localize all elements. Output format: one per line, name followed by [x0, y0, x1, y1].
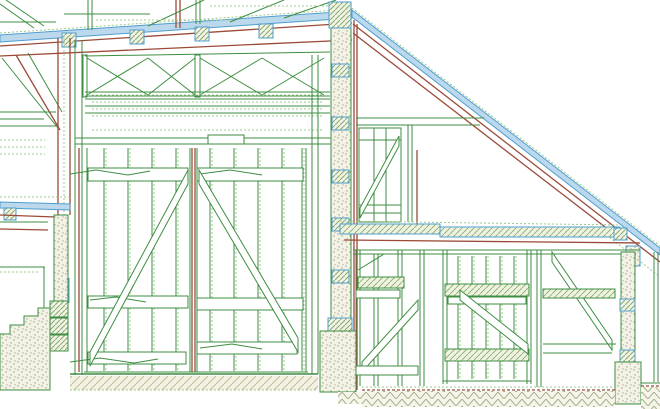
center-post	[320, 2, 364, 404]
left-top-rail	[88, 168, 188, 181]
right-post-mark	[620, 299, 635, 311]
right-pier	[615, 362, 641, 404]
eave-plate-right	[440, 227, 620, 237]
left-leaf-brace	[90, 170, 188, 366]
lower-lean-to-wall-line	[358, 254, 384, 270]
lean-to-eaves	[340, 221, 640, 266]
upper-lean-to-wall	[356, 118, 484, 226]
right-mid-rail	[197, 298, 303, 310]
lean-to-door-rail-bottom	[445, 349, 529, 361]
main-double-door	[70, 55, 318, 374]
right-panel-rail	[543, 289, 615, 298]
plinth-block	[50, 301, 68, 317]
center-footing	[338, 392, 364, 404]
lower-lean-to-wall	[353, 250, 658, 404]
left-brace	[2, 58, 58, 128]
main-roof-slope-line	[352, 8, 660, 246]
eave-end-block	[614, 228, 627, 240]
barn-floor-hatch	[70, 376, 318, 390]
x-bracing-row	[87, 58, 324, 95]
lean-to-door	[443, 250, 531, 384]
post-section-mark	[332, 170, 349, 183]
outside-ground-hatch	[641, 387, 660, 409]
panel-brace	[360, 136, 399, 218]
stepped-terrain	[0, 308, 50, 390]
section-drawing	[0, 0, 660, 409]
lower-lean-to-wall-line	[356, 290, 400, 298]
lintel-block	[208, 135, 244, 144]
wall-post-section	[83, 55, 87, 97]
left-panel-brace	[362, 300, 418, 372]
lean-to-ground-hatch	[362, 391, 615, 407]
plinth-block	[50, 335, 68, 351]
purlin-section	[195, 27, 209, 41]
left-post-masonry	[54, 215, 68, 301]
eave-fascia-line	[344, 240, 640, 243]
cad-drawing-page	[0, 0, 660, 409]
right-panel-brace	[552, 252, 612, 350]
slope-fascia-2	[353, 33, 622, 240]
plinth-block	[50, 318, 68, 334]
upper-roof-eaves	[0, 0, 352, 56]
left-panel-sill	[356, 366, 418, 375]
post-section-mark	[332, 270, 349, 283]
center-post-head	[329, 2, 351, 28]
lean-to-door-rail-top	[445, 284, 529, 296]
left-panel-rail	[358, 277, 404, 288]
slope-blue-band	[352, 10, 660, 255]
upper-barn-wall-line	[85, 52, 330, 56]
post-section-mark	[332, 117, 349, 130]
wall-post-section	[195, 55, 200, 97]
post-section-mark	[332, 64, 349, 77]
left-purlin-section	[4, 208, 16, 220]
horizontal-siding	[85, 92, 330, 130]
right-leaf-brace	[199, 170, 298, 352]
right-bottom-rail	[197, 342, 297, 354]
left-mid-rail	[88, 296, 188, 308]
ground	[70, 374, 660, 409]
center-pier	[320, 331, 356, 392]
right-top-rail	[197, 168, 303, 181]
right-post-mark	[620, 350, 635, 362]
eave-plate-left	[340, 224, 440, 234]
left-adjoining-structure-line	[0, 229, 48, 230]
purlin-section	[130, 30, 144, 44]
purlin-section	[259, 24, 273, 38]
left-foundation	[0, 215, 69, 390]
post-base-pad	[328, 318, 352, 331]
